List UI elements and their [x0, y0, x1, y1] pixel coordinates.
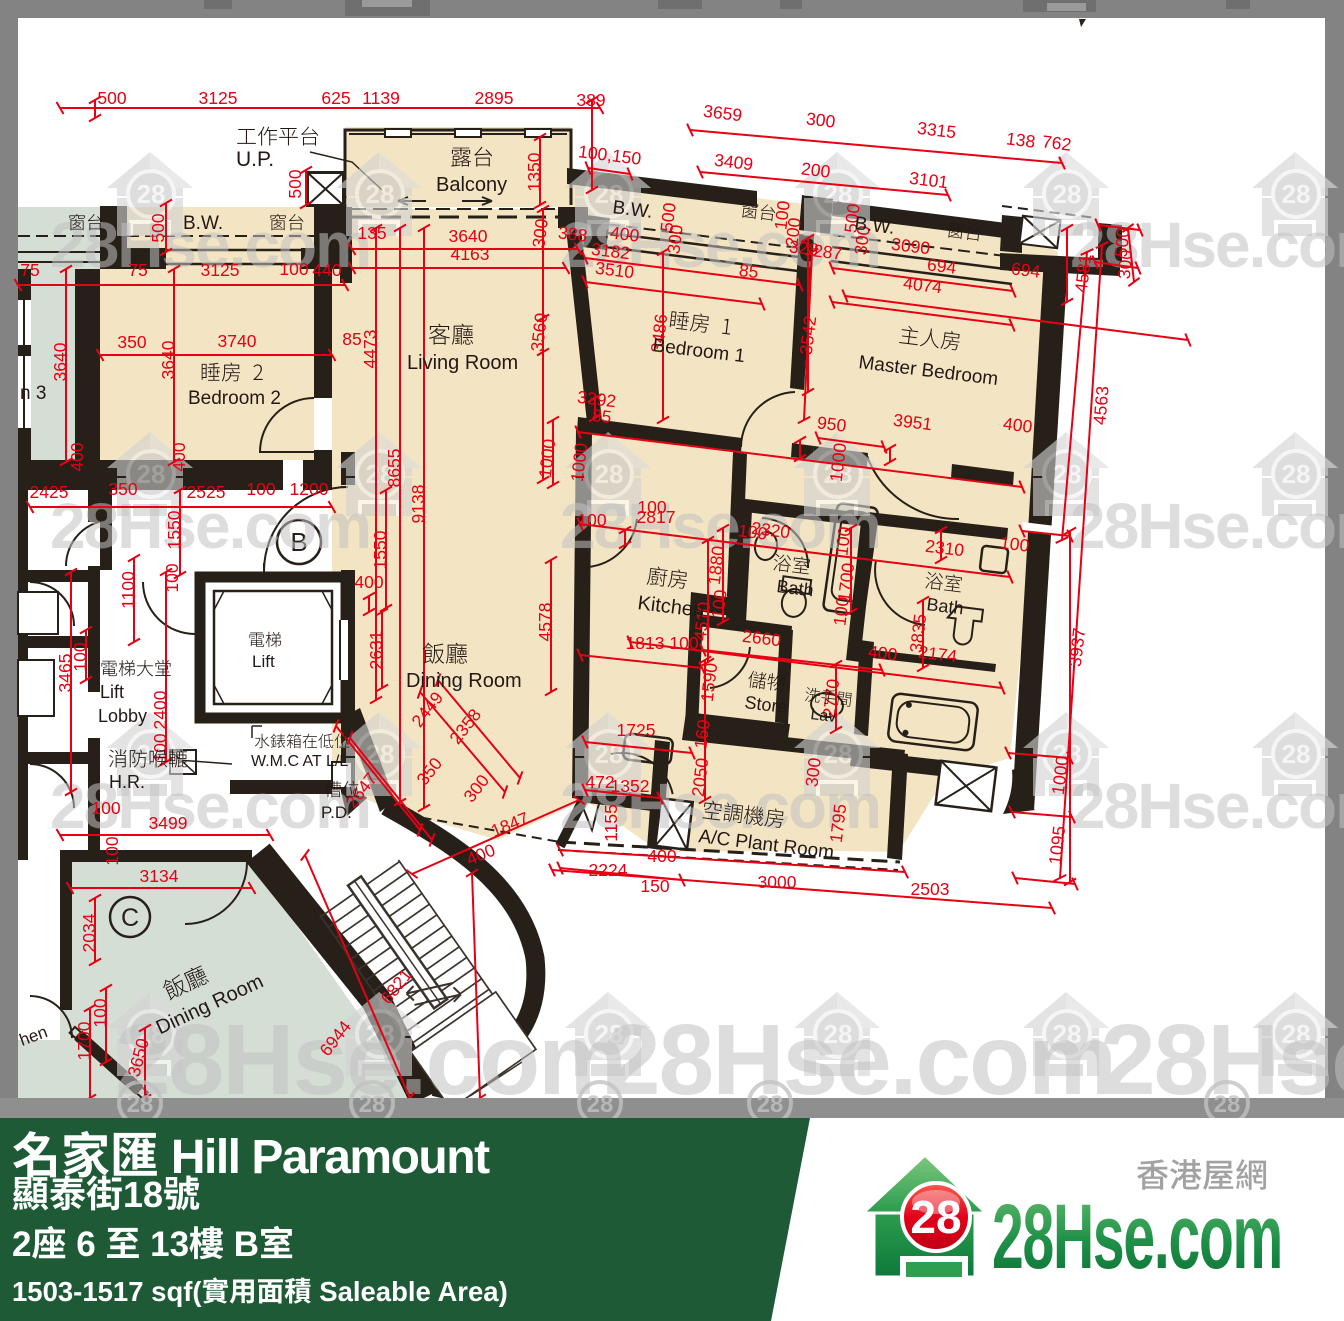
svg-text:n 3: n 3 [20, 383, 46, 404]
svg-text:400: 400 [354, 572, 383, 592]
svg-text:H.R.: H.R. [109, 772, 145, 792]
svg-text:2817: 2817 [637, 507, 676, 527]
svg-text:28: 28 [757, 1091, 784, 1118]
svg-text:300: 300 [801, 756, 824, 788]
svg-text:762: 762 [1041, 131, 1072, 154]
svg-text:75: 75 [20, 260, 39, 280]
svg-text:Saleable Area): Saleable Area) [312, 1276, 508, 1307]
svg-text:Lobby: Lobby [98, 706, 147, 726]
svg-text:3125: 3125 [201, 260, 240, 280]
svg-text:400: 400 [1002, 413, 1034, 436]
svg-text:1200: 1200 [290, 479, 329, 499]
svg-text:3134: 3134 [140, 866, 179, 886]
svg-text:300: 300 [1114, 249, 1136, 280]
svg-text:Lift: Lift [252, 652, 275, 671]
svg-text:2895: 2895 [475, 88, 514, 108]
svg-text:160: 160 [690, 718, 713, 750]
svg-text:85: 85 [591, 405, 613, 427]
svg-text:100: 100 [737, 520, 769, 543]
svg-text:3640: 3640 [449, 226, 488, 246]
svg-text:287: 287 [812, 240, 843, 263]
svg-text:1100: 1100 [118, 571, 138, 609]
svg-text:500: 500 [148, 213, 168, 242]
svg-text:2400: 2400 [150, 690, 170, 729]
svg-text:1155: 1155 [601, 804, 621, 842]
svg-text:389: 389 [576, 90, 605, 110]
svg-text:200: 200 [800, 158, 832, 181]
svg-text:400: 400 [867, 641, 899, 664]
svg-text:Lav: Lav [810, 706, 838, 726]
svg-text:100: 100 [831, 525, 854, 557]
svg-text:3000: 3000 [758, 872, 797, 892]
svg-text:440: 440 [312, 260, 341, 280]
svg-text:28: 28 [587, 1091, 614, 1118]
svg-text:28: 28 [1214, 1091, 1241, 1118]
svg-text:100: 100 [102, 836, 122, 865]
svg-text:1550: 1550 [164, 510, 184, 549]
svg-text:300: 300 [528, 217, 551, 249]
svg-text:500: 500 [285, 169, 305, 198]
svg-text:2224: 2224 [589, 860, 628, 880]
svg-text:9138: 9138 [408, 485, 428, 524]
svg-text:500: 500 [97, 88, 126, 108]
svg-text:B.W.: B.W. [183, 213, 223, 234]
svg-text:Lift: Lift [100, 682, 124, 702]
svg-text:1352: 1352 [611, 776, 650, 796]
svg-text:W.M.C AT L/L: W.M.C AT L/L [251, 753, 348, 770]
svg-text:100: 100 [70, 642, 90, 671]
svg-text:28: 28 [910, 1191, 961, 1243]
svg-text:100: 100 [999, 532, 1031, 555]
svg-text:1550: 1550 [370, 530, 390, 569]
svg-text:350: 350 [108, 479, 137, 499]
svg-text:400: 400 [169, 442, 189, 471]
svg-text:Dining Room: Dining Room [406, 670, 522, 692]
svg-text:85: 85 [738, 260, 760, 282]
svg-text:1725: 1725 [617, 720, 656, 740]
svg-text:28Hse.com: 28Hse.com [1070, 490, 1344, 562]
svg-text:950: 950 [816, 412, 848, 435]
svg-text:4163: 4163 [451, 244, 490, 264]
svg-text:100: 100 [246, 479, 275, 499]
svg-text:135: 135 [357, 223, 386, 243]
svg-text:8655: 8655 [384, 449, 404, 488]
svg-text:3125: 3125 [199, 88, 238, 108]
svg-text:75: 75 [128, 260, 147, 280]
svg-text:2525: 2525 [187, 482, 226, 502]
svg-text:3740: 3740 [218, 331, 257, 351]
svg-text:1813: 1813 [626, 633, 665, 653]
svg-text:4563: 4563 [1089, 385, 1112, 426]
svg-text:28: 28 [127, 1091, 154, 1118]
svg-text:2: 2 [12, 1225, 31, 1264]
svg-text:400: 400 [647, 846, 676, 866]
svg-text:388: 388 [557, 222, 588, 245]
svg-text:6: 6 [67, 1225, 106, 1264]
svg-text:300: 300 [805, 108, 837, 131]
svg-text:4473: 4473 [360, 330, 380, 369]
svg-text:3499: 3499 [149, 813, 188, 833]
svg-text:Living Room: Living Room [407, 352, 518, 374]
svg-text:100: 100 [91, 798, 120, 818]
svg-text:Bedroom 2: Bedroom 2 [188, 388, 281, 409]
svg-text:694: 694 [1010, 258, 1042, 281]
svg-text:28: 28 [359, 1091, 386, 1118]
svg-text:28Hse.com: 28Hse.com [1070, 770, 1344, 842]
svg-text:400: 400 [67, 442, 87, 471]
svg-text:85: 85 [342, 329, 361, 349]
svg-text:P.D.: P.D. [321, 803, 352, 822]
svg-text:2631: 2631 [366, 631, 386, 670]
svg-text:Hill Paramount: Hill Paramount [159, 1131, 490, 1184]
svg-text:300: 300 [663, 223, 686, 255]
svg-text:2034: 2034 [79, 913, 99, 952]
svg-text:Balcony: Balcony [436, 174, 507, 196]
svg-text:2503: 2503 [911, 879, 950, 899]
svg-text:4578: 4578 [535, 603, 555, 642]
svg-text:100: 100 [90, 998, 110, 1027]
svg-text:3640: 3640 [50, 342, 70, 381]
svg-text:694: 694 [926, 254, 958, 277]
svg-text:100: 100 [577, 510, 606, 530]
svg-text:B: B [224, 1225, 259, 1264]
svg-text:625: 625 [321, 88, 350, 108]
svg-text:100: 100 [279, 259, 308, 279]
svg-text:100: 100 [829, 595, 852, 627]
svg-text:1139: 1139 [362, 88, 400, 108]
svg-text:100: 100 [162, 563, 182, 592]
svg-text:150: 150 [640, 876, 669, 896]
svg-text:350: 350 [117, 332, 146, 352]
svg-text:1350: 1350 [524, 152, 544, 191]
svg-text:1503-1517 sqf(: 1503-1517 sqf( [12, 1276, 202, 1307]
svg-text:U.P.: U.P. [236, 148, 274, 171]
svg-text:2425: 2425 [30, 482, 69, 502]
svg-text:13: 13 [140, 1225, 189, 1264]
svg-text:C: C [121, 904, 139, 932]
svg-text:28Hse.com: 28Hse.com [992, 1186, 1282, 1288]
svg-text:100: 100 [669, 633, 698, 653]
svg-text:138: 138 [1005, 128, 1036, 151]
svg-text:3640: 3640 [158, 340, 178, 379]
svg-text:18: 18 [123, 1174, 163, 1215]
